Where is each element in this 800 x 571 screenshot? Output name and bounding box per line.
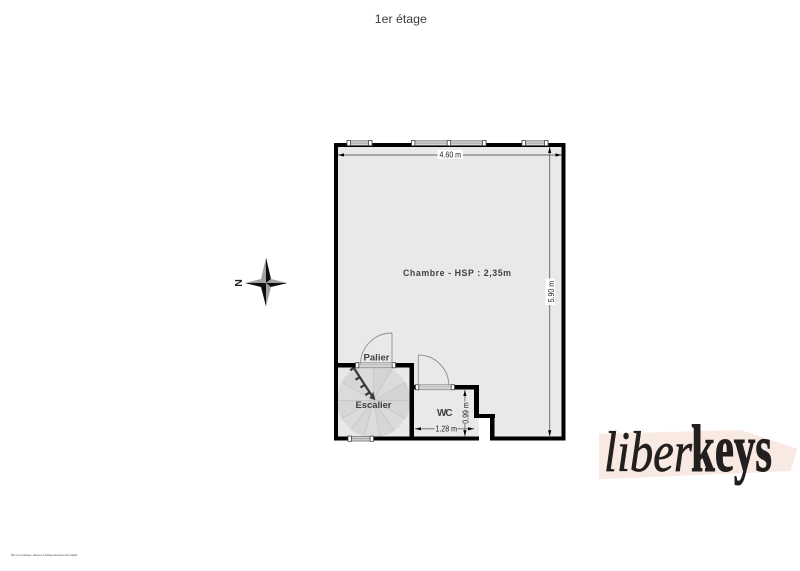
svg-text:Escalier: Escalier xyxy=(356,400,392,411)
svg-text:0.99 m: 0.99 m xyxy=(462,402,471,424)
svg-text:liber: liber xyxy=(604,421,693,484)
svg-text:N: N xyxy=(233,279,245,287)
svg-text:1er étage: 1er étage xyxy=(375,12,427,26)
svg-text:5.90 m: 5.90 m xyxy=(547,280,556,302)
svg-text:WC: WC xyxy=(437,408,453,419)
svg-text:keys: keys xyxy=(691,412,772,486)
svg-text:Chambre - HSP : 2,35m: Chambre - HSP : 2,35m xyxy=(403,268,511,278)
svg-text:Palier: Palier xyxy=(364,353,390,364)
svg-text:4.60 m: 4.60 m xyxy=(440,151,462,160)
svg-text:Plan non contractuel - Mesures: Plan non contractuel - Mesures et Surfac… xyxy=(11,553,77,557)
svg-text:1.28 m: 1.28 m xyxy=(435,425,457,434)
